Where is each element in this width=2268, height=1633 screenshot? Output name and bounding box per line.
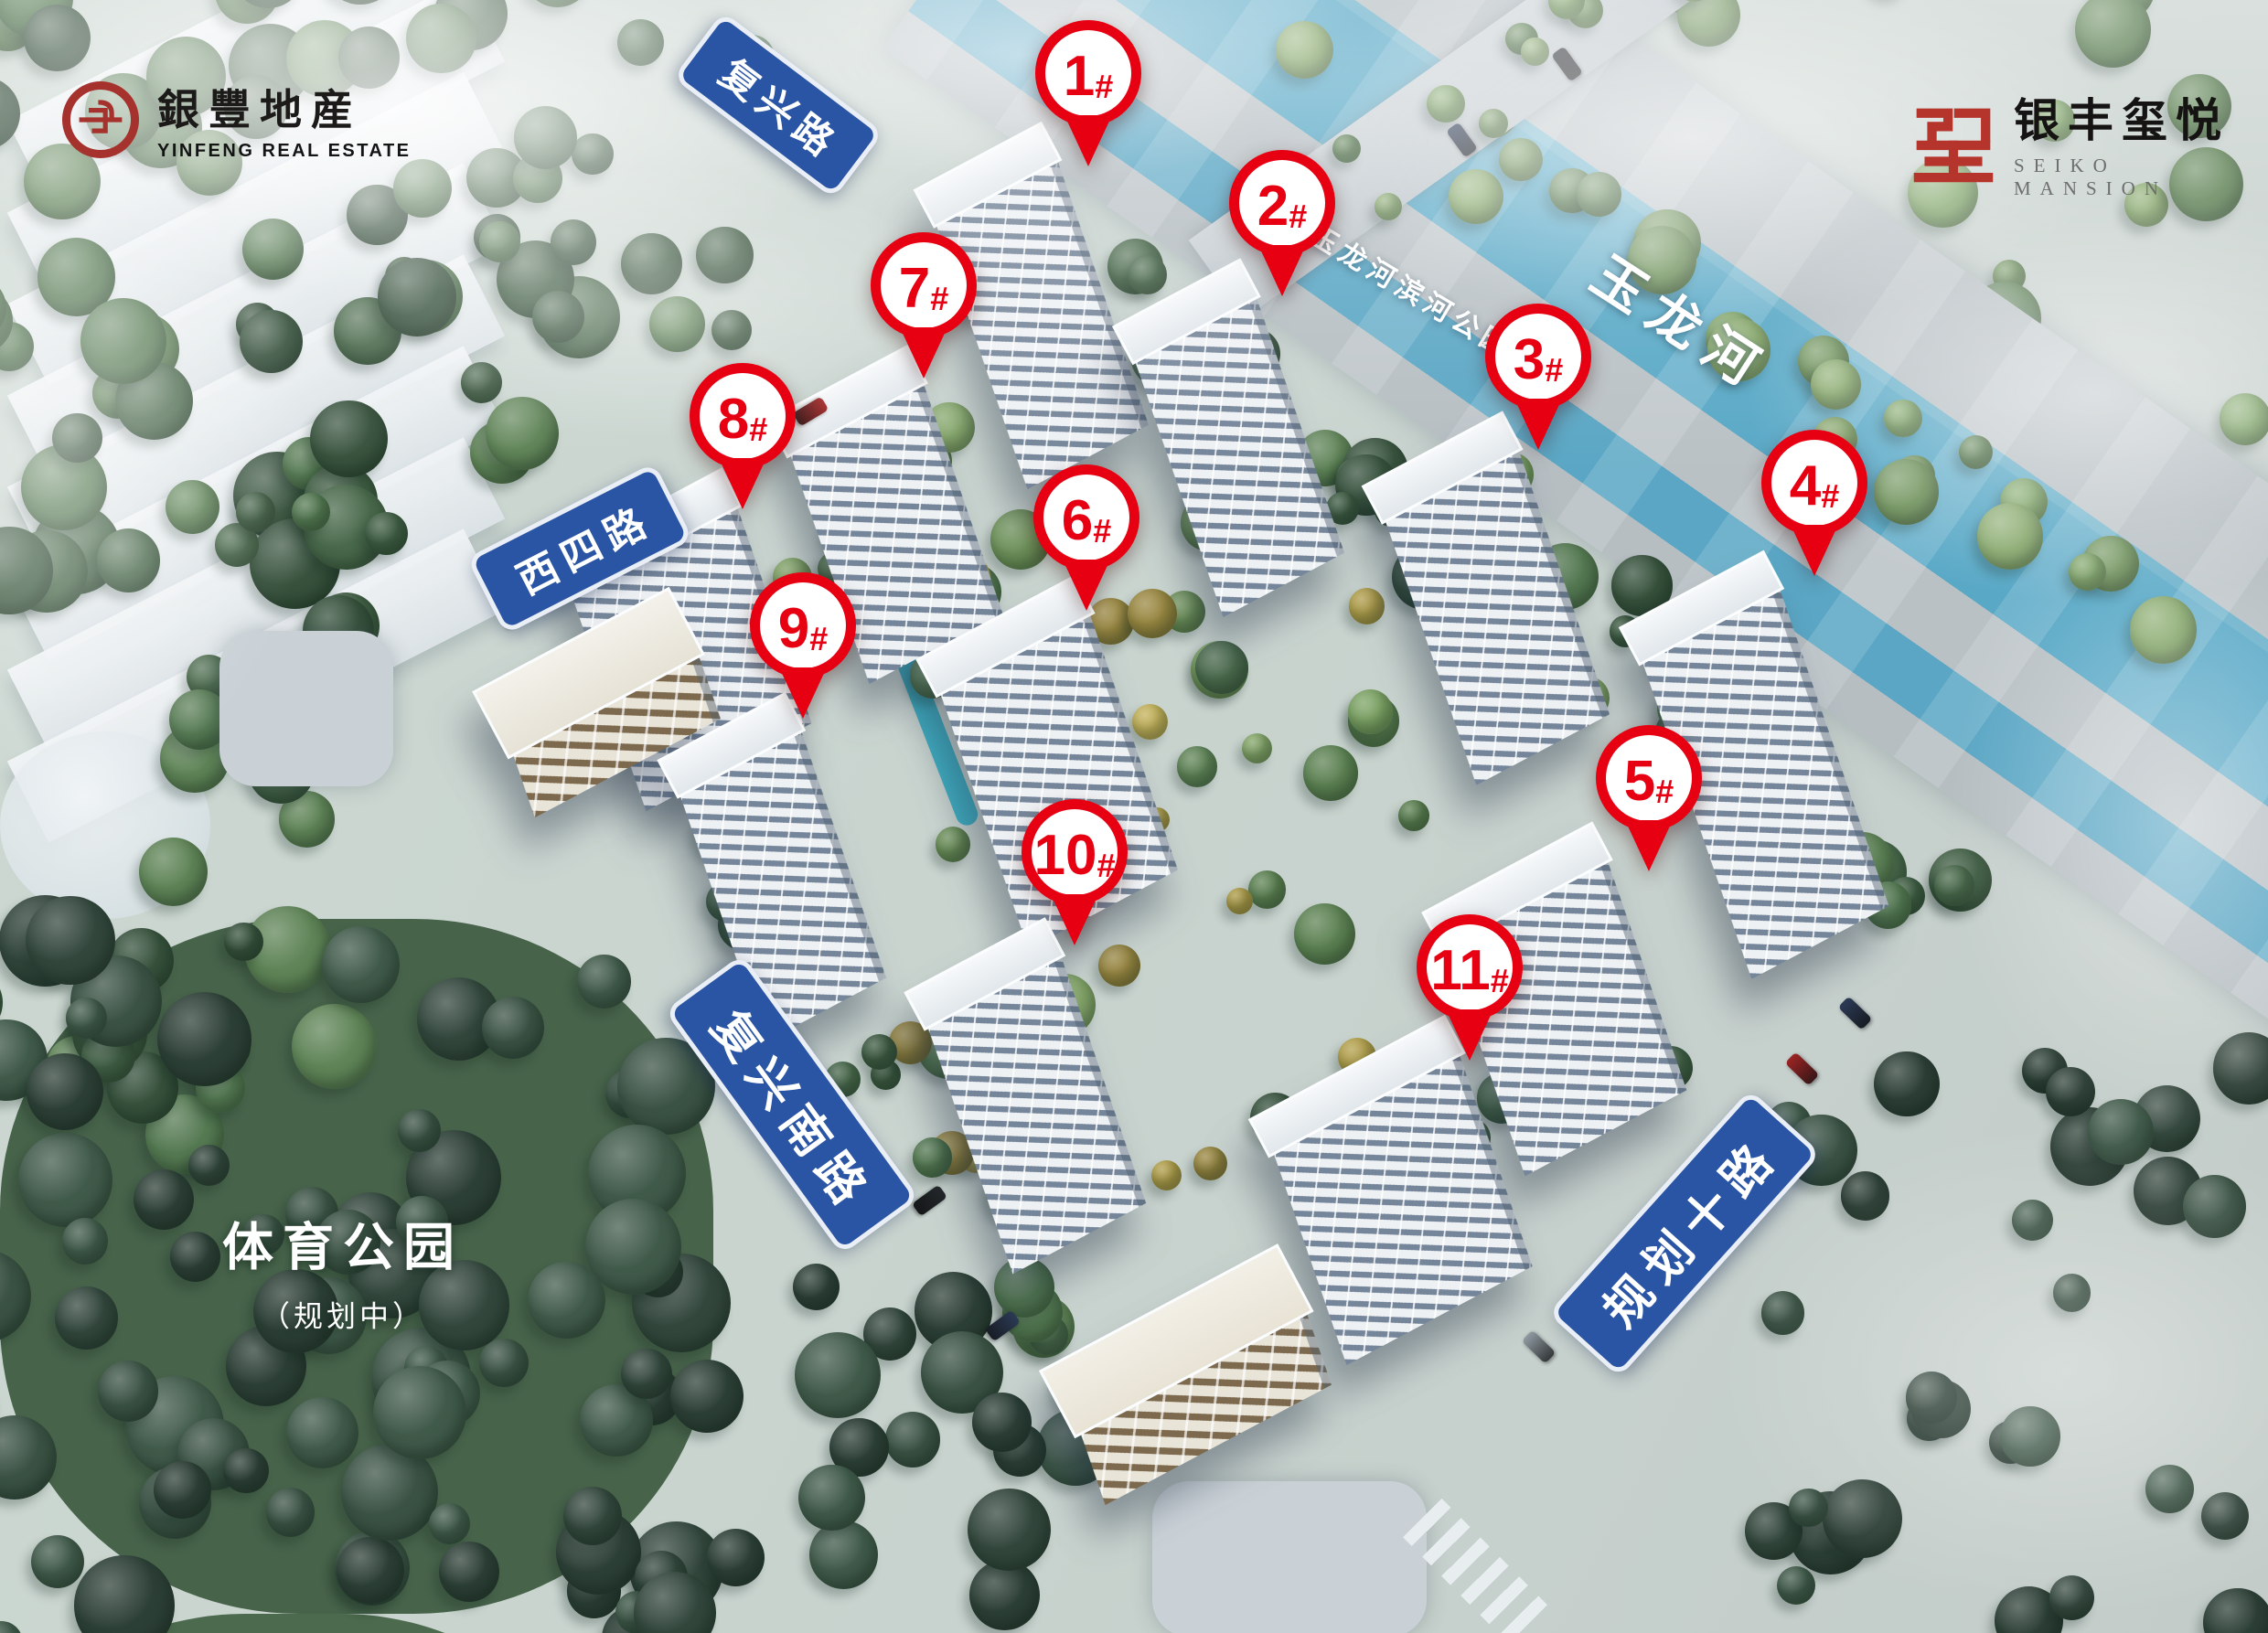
building-marker: 9# [750,572,856,678]
marker-hash: # [1655,763,1674,821]
aerial-scene: 复兴路西四路复兴南路规划十路玉龙河玉龙河滨河公园体育公园（规划中）1#2#3#4… [0,0,2268,1633]
commercial-building [1045,1247,1342,1500]
tree [98,1361,158,1421]
tree [80,298,166,384]
tree [286,1397,358,1469]
tree [461,362,502,403]
tree [365,512,408,555]
masterplan-rendering: 复兴路西四路复兴南路规划十路玉龙河玉龙河滨河公园体育公园（规划中）1#2#3#4… [0,0,2268,1633]
tree [439,1542,499,1602]
marker-tail [1051,894,1098,945]
building-marker: 8# [690,363,796,469]
tree [157,992,252,1087]
project-logo-cn: 银丰玺悦 [2014,84,2268,150]
tree [188,1145,230,1186]
tree [1349,588,1385,624]
tree [1128,255,1167,294]
marker-circle: 9# [750,572,856,678]
tree [2000,1406,2059,1466]
intersection-plaza [1152,1481,1427,1633]
marker-hash: # [1095,58,1113,116]
tree [2183,1175,2246,1238]
tree [1098,945,1140,987]
tree [707,1529,765,1586]
tree [2220,393,2268,445]
marker-hash: # [1491,952,1509,1010]
marker-number: 3 [1514,321,1545,400]
building-marker: 1# [1035,20,1141,126]
tree [551,219,596,265]
marker-circle: 5# [1596,725,1702,831]
tree [1479,109,1508,138]
tree [1934,865,1974,905]
marker-circle: 10# [1022,799,1128,905]
marker-tail [1063,560,1110,611]
tree [1294,903,1355,965]
tree [1427,85,1465,123]
tree [310,400,387,477]
marker-tail [1625,820,1673,871]
tree [1521,37,1548,65]
tree [479,221,520,262]
tree [711,310,753,351]
marker-tail [900,327,947,379]
tree [1761,1291,1804,1334]
tree [52,413,102,463]
tree [1977,503,2044,570]
project-logo: 银丰玺悦 SEIKO MANSION [1913,84,2268,200]
tree [885,1412,941,1468]
tree [1823,1479,1901,1558]
tree [1811,359,1861,410]
tree [1906,1372,1958,1424]
sports-park-name: 体育公园 [222,1207,464,1281]
tree [1177,746,1218,787]
marker-number: 2 [1257,167,1289,246]
tree [97,528,160,592]
tree [0,1621,23,1633]
tree [1226,888,1253,914]
tree [62,1218,109,1265]
tree [24,5,91,71]
tree [1789,1489,1827,1527]
tree [2075,0,2151,68]
tree [1248,870,1287,909]
tree [2201,1492,2249,1540]
tree [337,1537,403,1604]
tree [532,291,584,343]
tree [223,1448,268,1493]
tree [861,1034,897,1070]
building-marker: 3# [1485,304,1591,410]
marker-hash: # [1093,502,1111,560]
marker-number: 4 [1790,447,1821,526]
tree [429,1503,470,1544]
marker-circle: 7# [871,232,977,338]
tree [134,1169,194,1230]
marker-number: 1 [1064,37,1095,116]
marker-tail [1446,1009,1493,1061]
marker-circle: 3# [1485,304,1591,410]
tree [1499,138,1543,182]
tree [66,998,107,1039]
tree [1777,1566,1815,1605]
tree [1449,169,1503,224]
tree [577,955,631,1009]
seiko-mansion-seal-icon [1913,102,1994,183]
developer-logo-cn: 銀豐地産 [157,77,412,137]
tree [55,1286,117,1349]
marker-number: 8 [718,380,749,459]
tree [649,296,705,352]
marker-number: 5 [1624,742,1655,821]
tree [2213,1032,2268,1104]
marker-circle: 8# [690,363,796,469]
building-marker: 11# [1417,914,1523,1020]
tree [154,1461,211,1519]
tree [378,258,455,336]
tree [621,1349,672,1400]
tree [406,4,476,73]
tree [968,1489,1051,1572]
tree [486,397,558,469]
tree [292,1004,378,1090]
tree [670,1360,744,1433]
yinfeng-seal-icon [62,81,139,158]
tree [809,1521,878,1589]
tree [393,159,452,218]
building-marker: 2# [1229,150,1335,256]
tree [2145,1465,2194,1513]
marker-number: 10 [1034,816,1097,895]
tree [1242,733,1272,763]
tree [27,1053,103,1130]
tree [696,227,753,283]
marker-number: 6 [1062,482,1093,560]
tree [528,1262,604,1339]
tree [18,1133,112,1226]
tree [482,997,544,1059]
tree [1677,0,1740,47]
tree [1874,459,1939,524]
sports-park-status: （规划中） [222,1294,464,1336]
marker-circle: 6# [1033,464,1139,571]
developer-logo-en: YINFENG REAL ESTATE [157,141,412,162]
marker-circle: 11# [1417,914,1523,1020]
tree [936,827,971,862]
tree [1577,172,1621,216]
marker-hash: # [1821,467,1839,526]
tree [266,1488,316,1537]
marker-tail [719,458,766,509]
marker-tail [1258,245,1306,296]
tree [1375,193,1402,220]
tree [2053,1274,2091,1311]
marker-number: 7 [899,250,930,328]
project-logo-en: SEIKO MANSION [2014,155,2268,200]
tree [572,133,614,176]
developer-logo: 銀豐地産 YINFENG REAL ESTATE [62,77,412,162]
tree [621,233,682,294]
tree [2046,1067,2095,1116]
tree [2203,1588,2268,1633]
building-marker: 10# [1022,799,1128,905]
tree [1874,1051,1939,1116]
tree [1195,641,1248,694]
tree [793,1264,840,1310]
marker-hash: # [749,400,767,459]
tree [2069,553,2106,591]
marker-circle: 2# [1229,150,1335,256]
building-marker: 7# [871,232,977,338]
tree [514,106,577,169]
marker-tail [1064,115,1112,166]
marker-tail [1791,525,1838,576]
tree [2012,1200,2053,1241]
marker-tail [1514,399,1562,450]
tree [1193,1147,1227,1180]
tree [1348,689,1393,734]
marker-hash: # [1097,837,1115,895]
marker-hash: # [930,270,948,328]
tree [31,1535,84,1588]
marker-hash: # [1289,187,1307,246]
tree [373,1366,466,1459]
tree [166,480,219,534]
marker-hash: # [809,610,828,668]
sports-park-label: 体育公园（规划中） [222,1207,464,1336]
tree [1959,435,1993,469]
tree [1276,21,1333,79]
marker-circle: 4# [1761,430,1867,536]
tree [1841,1171,1889,1220]
tree [2088,1099,2154,1165]
tree [798,1465,865,1532]
tree [1398,800,1429,831]
building-marker: 4# [1761,430,1867,536]
marker-number: 9 [778,590,809,668]
building-marker: 5# [1596,725,1702,831]
intersection-plaza [219,631,393,786]
marker-tail [779,667,827,719]
tree [1303,745,1359,801]
tree [795,1332,881,1418]
tree [2049,1575,2094,1620]
marker-circle: 1# [1035,20,1141,126]
tree [1884,400,1922,438]
building-marker: 6# [1033,464,1139,571]
tree [224,923,263,962]
marker-hash: # [1545,341,1563,400]
marker-number: 11 [1430,932,1491,1010]
tree [1128,589,1177,638]
